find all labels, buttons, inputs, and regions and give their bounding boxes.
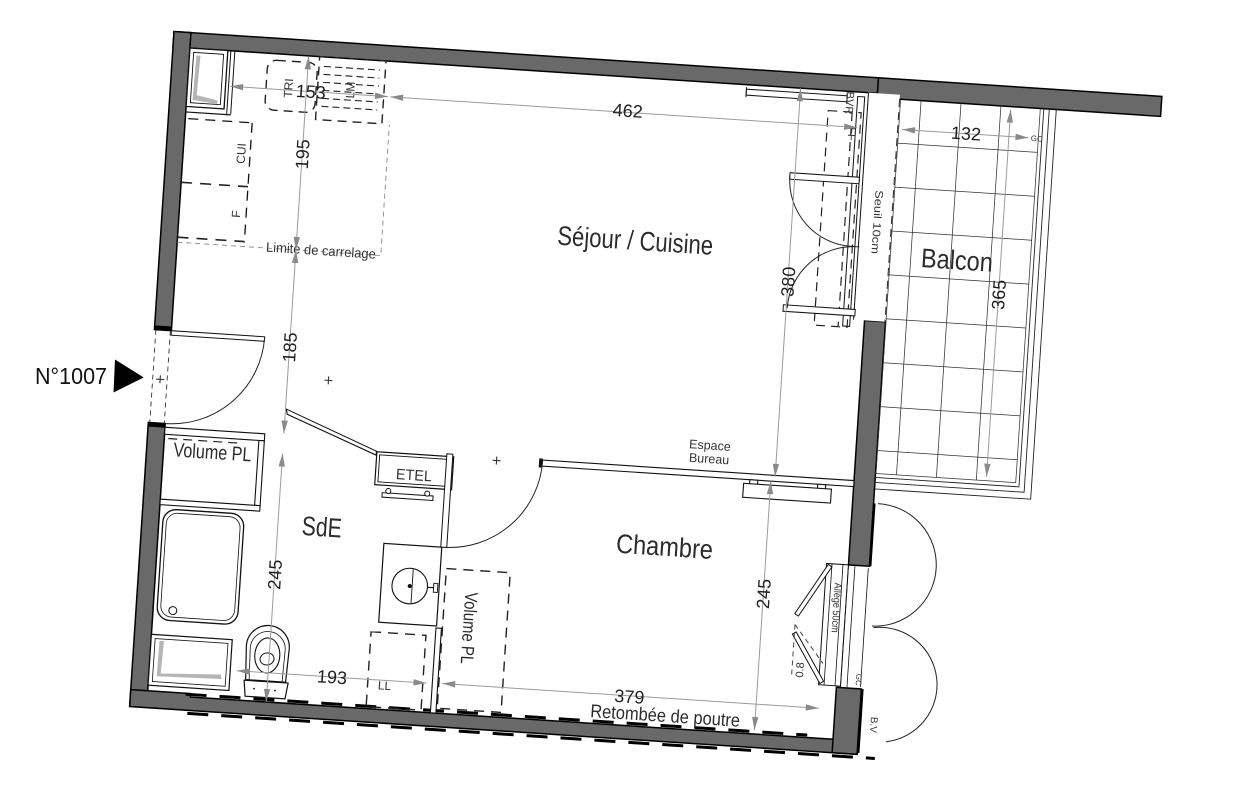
- svg-text:Volume PL: Volume PL: [173, 439, 252, 466]
- svg-text:185: 185: [279, 332, 301, 363]
- svg-text:SdE: SdE: [301, 511, 343, 544]
- svg-text:Séjour / Cuisine: Séjour / Cuisine: [556, 221, 714, 261]
- svg-text:193: 193: [316, 666, 347, 688]
- svg-text:BVR: BVR: [842, 91, 855, 114]
- svg-text:0.8: 0.8: [794, 662, 807, 678]
- svg-text:B.V: B.V: [867, 716, 879, 733]
- svg-text:N°1007: N°1007: [35, 363, 107, 389]
- svg-text:ETEL: ETEL: [395, 466, 432, 485]
- svg-text:245: 245: [264, 559, 286, 590]
- svg-text:132: 132: [950, 123, 981, 145]
- svg-text:Limite de carrelage: Limite de carrelage: [266, 240, 377, 262]
- svg-text:F: F: [229, 210, 243, 218]
- svg-text:Bureau: Bureau: [689, 451, 730, 468]
- svg-text:153: 153: [295, 81, 326, 103]
- svg-text:TRI: TRI: [281, 78, 296, 98]
- svg-text:Chambre: Chambre: [615, 529, 714, 565]
- svg-text:GC: GC: [1031, 134, 1044, 144]
- svg-text:Volume PL: Volume PL: [457, 592, 482, 665]
- svg-text:GC: GC: [854, 673, 864, 686]
- svg-text:195: 195: [292, 139, 314, 170]
- svg-text:245: 245: [753, 578, 775, 609]
- svg-text:462: 462: [612, 100, 643, 122]
- svg-text:LM: LM: [343, 81, 358, 99]
- svg-text:380: 380: [777, 266, 799, 297]
- svg-text:CUI: CUI: [234, 143, 249, 165]
- svg-text:Balcon: Balcon: [920, 243, 994, 278]
- svg-text:365: 365: [988, 279, 1010, 310]
